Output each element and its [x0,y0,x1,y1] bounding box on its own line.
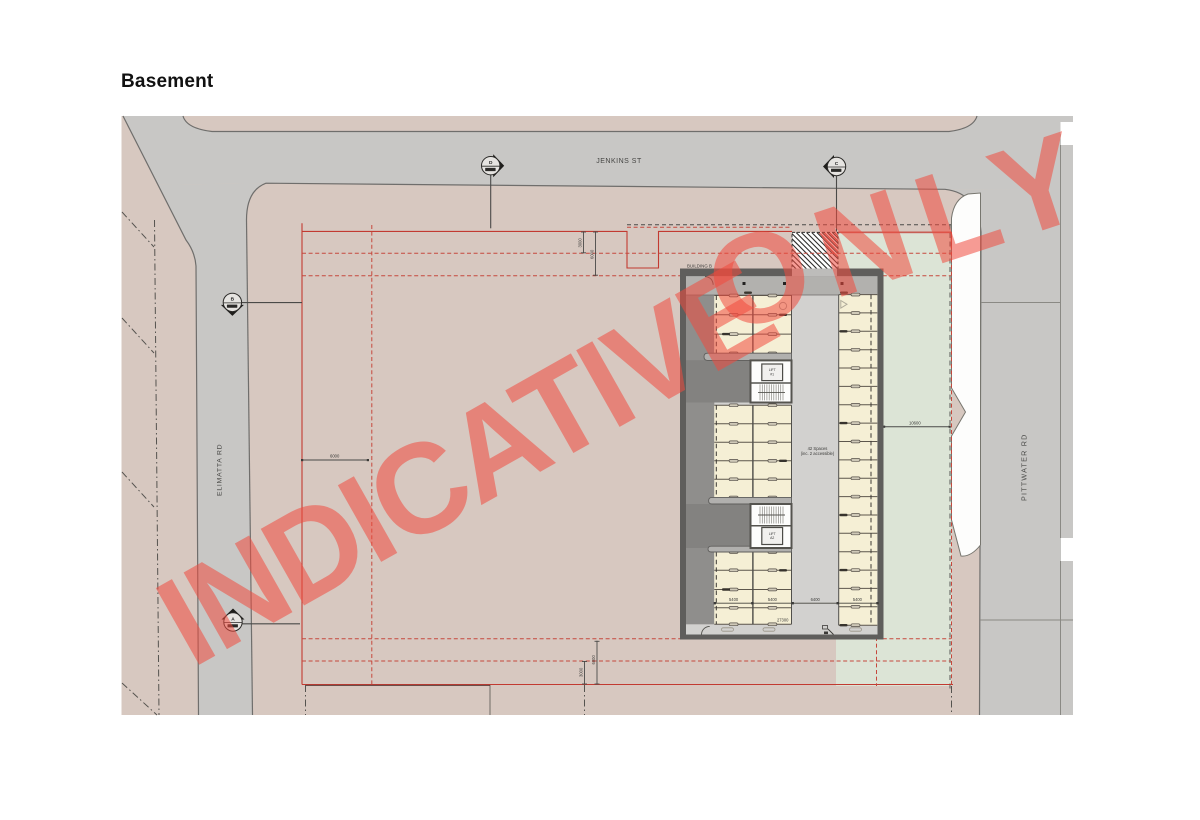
svg-text:PITTWATER RD: PITTWATER RD [1020,433,1029,501]
svg-text:5400: 5400 [768,597,778,602]
svg-text:C: C [835,161,839,167]
svg-text:6400: 6400 [811,597,821,602]
svg-text:3000: 3000 [578,238,583,248]
svg-text:10600: 10600 [909,421,921,426]
svg-text:5400: 5400 [729,597,739,602]
svg-text:LIFT: LIFT [769,532,776,536]
svg-text:6000: 6000 [591,655,596,665]
svg-text:ELIMATTA RD: ELIMATTA RD [217,444,224,496]
svg-text:27300: 27300 [777,618,789,623]
svg-text:JENKINS ST: JENKINS ST [596,158,642,165]
svg-text:A2: A2 [770,536,774,540]
svg-text:6000: 6000 [590,249,595,259]
svg-text:D: D [489,160,493,166]
svg-text:3000: 3000 [579,667,584,677]
svg-text:(inc. 2 accessible): (inc. 2 accessible) [801,451,835,456]
svg-text:5400: 5400 [853,597,863,602]
svg-text:B: B [231,297,235,303]
